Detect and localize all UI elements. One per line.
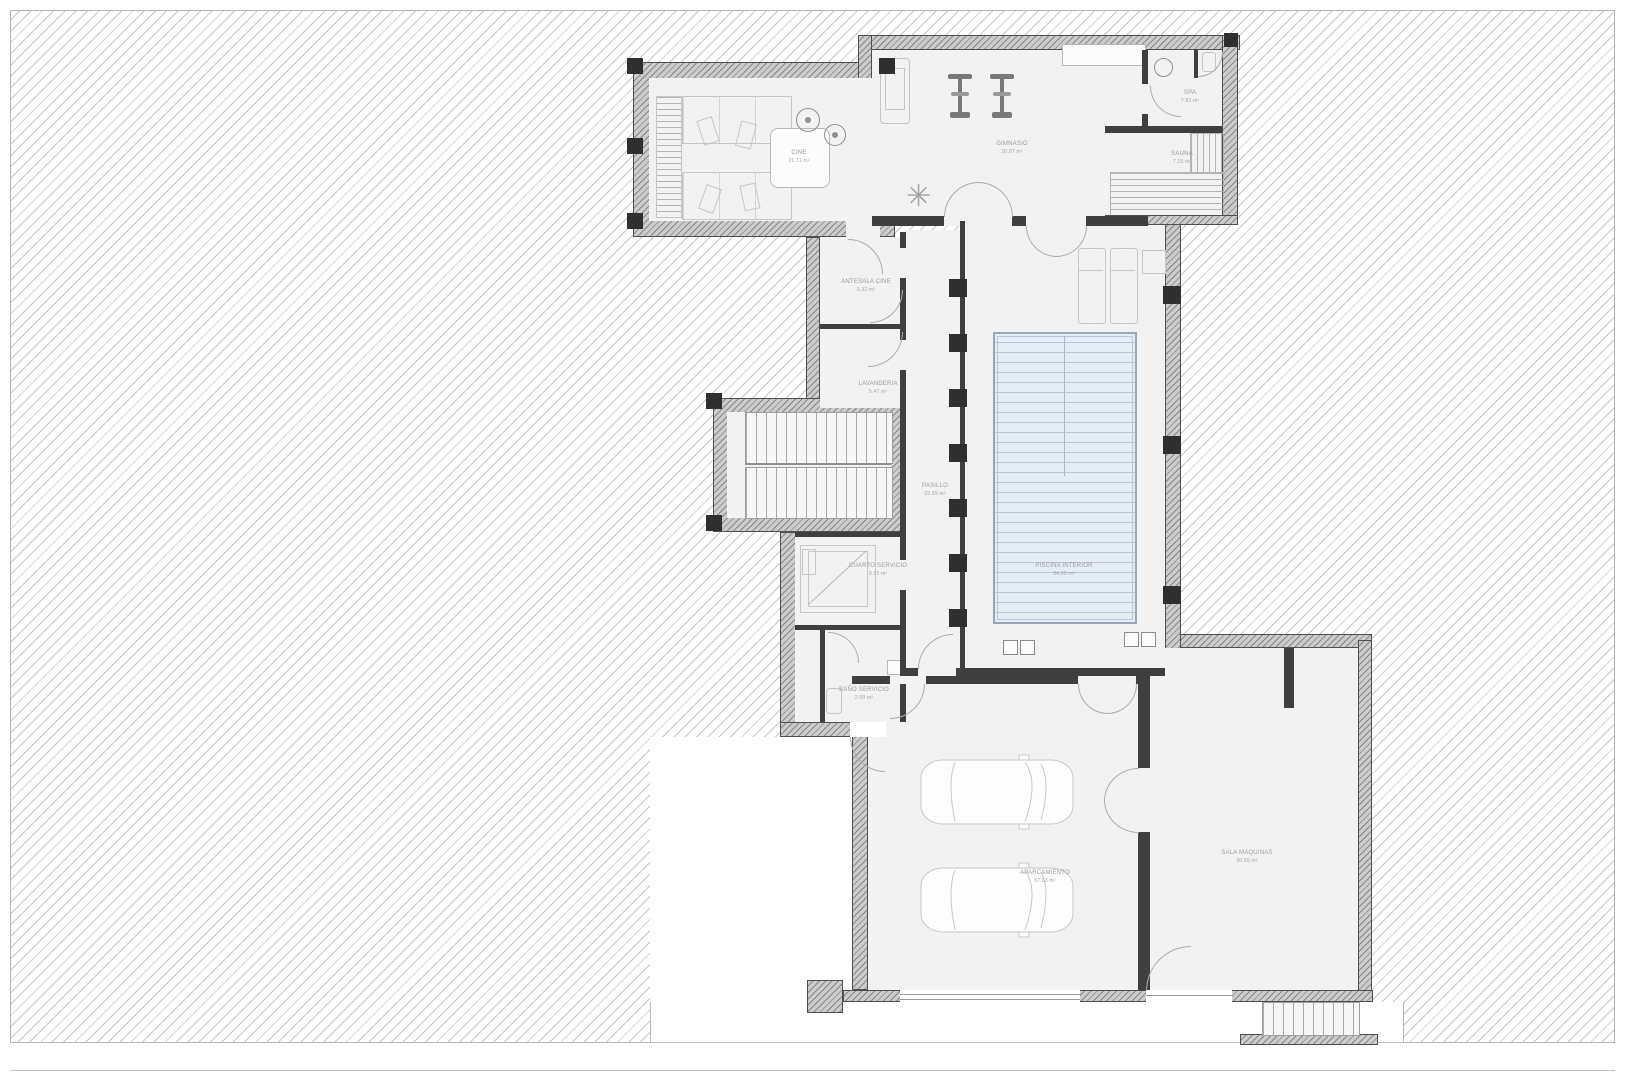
wall-segment xyxy=(820,630,825,722)
room-name: GIMNASIO xyxy=(996,141,1028,147)
door-opening xyxy=(850,722,886,737)
door-opening xyxy=(890,676,926,684)
room-area: 9.15 m² xyxy=(849,571,907,578)
lounger-line xyxy=(1079,270,1103,271)
stair-flight-upper xyxy=(745,412,893,464)
wall-segment xyxy=(858,35,1240,50)
room-name: ANTESALA CINE xyxy=(841,279,891,285)
column xyxy=(627,213,643,229)
room-sala-maquinas-floor xyxy=(1150,648,1358,990)
wall-segment xyxy=(1180,634,1372,648)
room-name: BAÑO SERVICIO xyxy=(839,687,889,693)
door-opening xyxy=(918,668,956,676)
speaker-dot xyxy=(832,132,838,138)
gym-machine xyxy=(958,76,962,116)
sauna-bench xyxy=(1110,172,1224,217)
room-label-cuarto-servicio: CUARTO SERVICIO9.15 m² xyxy=(849,563,907,577)
pool-lounger xyxy=(1110,248,1138,324)
room-label-sauna: SAUNA7.15 m² xyxy=(1171,151,1193,165)
room-name: PASILLO xyxy=(922,483,948,489)
lounger-line xyxy=(1111,270,1135,271)
gym-machine xyxy=(1000,76,1004,116)
side-table xyxy=(1142,250,1166,274)
wall-segment xyxy=(1284,648,1294,708)
wall-segment xyxy=(780,532,796,737)
spa-sink xyxy=(1154,58,1173,77)
floor-fixture xyxy=(1003,640,1018,655)
door-opening xyxy=(900,248,906,278)
room-area: 57.03 m² xyxy=(1020,878,1070,885)
column xyxy=(949,554,967,572)
room-area: 5.47 m² xyxy=(858,389,897,396)
wall-segment xyxy=(795,532,905,537)
door-opening xyxy=(1138,768,1150,832)
door-opening xyxy=(944,216,1012,226)
door-opening xyxy=(1146,990,1232,1002)
door-line xyxy=(1146,995,1232,996)
wall-segment xyxy=(1222,35,1238,220)
wall-segment xyxy=(820,324,905,329)
plant-icon: ✳ xyxy=(906,182,931,212)
room-label-bano: BAÑO SERVICIO2.09 m² xyxy=(839,687,889,701)
floor-plan-sheet: ✳ xyxy=(0,0,1625,1080)
column xyxy=(1163,436,1181,454)
speaker-dot xyxy=(805,117,811,123)
room-name: APARCAMIENTO xyxy=(1020,870,1070,876)
wall-segment xyxy=(806,237,820,410)
column xyxy=(1163,286,1181,304)
room-area: 23.85 m² xyxy=(922,491,948,498)
column xyxy=(879,58,895,74)
column xyxy=(1224,33,1238,47)
room-name: SAUNA xyxy=(1171,151,1193,157)
wall-segment xyxy=(795,625,905,630)
room-name: PISCINA INTERIOR xyxy=(1035,563,1092,569)
room-area: 2.09 m² xyxy=(839,695,889,702)
wall-segment xyxy=(1138,676,1150,990)
room-area: 30.97 m² xyxy=(996,149,1028,156)
room-label-aparcamiento: APARCAMIENTO57.03 m² xyxy=(1020,870,1070,884)
room-area: 7.15 m² xyxy=(1171,159,1193,166)
bed-diagonal xyxy=(808,551,866,605)
door-opening xyxy=(1078,676,1136,684)
sofa-chaise xyxy=(656,96,682,218)
wall-segment xyxy=(1105,126,1222,133)
room-name: CUARTO SERVICIO xyxy=(849,563,907,569)
pool-lane-line xyxy=(1064,336,1065,476)
door-opening xyxy=(1142,84,1148,114)
stair-divider xyxy=(745,463,891,465)
room-label-sala-maquinas: SALA MAQUINAS30.65 m² xyxy=(1221,850,1272,864)
room-label-gimnasio: GIMNASIO30.97 m² xyxy=(996,141,1028,155)
sheet-bottom-line xyxy=(10,1070,1615,1071)
room-name: SPA xyxy=(1184,90,1196,96)
column xyxy=(706,515,722,531)
column xyxy=(706,393,722,409)
gym-cabinet xyxy=(1062,44,1146,66)
column xyxy=(627,58,643,74)
column xyxy=(949,609,967,627)
room-area: 7.83 m² xyxy=(1181,98,1199,105)
pool-lounger xyxy=(1078,248,1106,324)
column xyxy=(949,334,967,352)
wall-segment xyxy=(807,980,843,1013)
sauna-deck xyxy=(1190,133,1224,174)
room-area: 21.71 m² xyxy=(788,158,809,165)
treadmill-belt xyxy=(885,68,905,110)
pool-inner-edge xyxy=(997,336,1133,620)
column xyxy=(1163,586,1181,604)
room-name: SALA MAQUINAS xyxy=(1221,850,1272,856)
column xyxy=(949,444,967,462)
column xyxy=(627,138,643,154)
column xyxy=(949,279,967,297)
room-label-piscina: PISCINA INTERIOR64.95 m² xyxy=(1035,563,1092,577)
exterior-stair xyxy=(1262,1002,1360,1036)
wall-segment xyxy=(1358,640,1372,1002)
room-area: 30.65 m² xyxy=(1221,858,1272,865)
garage-door-line xyxy=(900,999,1080,1000)
room-label-pasillo: PASILLO23.85 m² xyxy=(922,483,948,497)
column xyxy=(949,499,967,517)
room-label-lavanderia: LAVANDERIA5.47 m² xyxy=(858,381,897,395)
gym-machine xyxy=(992,112,1012,118)
room-aparcamiento-floor xyxy=(868,684,1138,990)
garage-door-opening xyxy=(900,990,1080,1002)
room-name: CINE xyxy=(791,150,806,156)
gym-machine xyxy=(993,92,1011,96)
floor-fixture xyxy=(1124,632,1139,647)
floor-fixture xyxy=(1141,632,1156,647)
gym-machine xyxy=(950,112,970,118)
room-label-antesala: ANTESALA CINE6.32 m² xyxy=(841,279,891,293)
car xyxy=(915,750,1079,834)
door-opening xyxy=(1026,216,1086,226)
door-opening xyxy=(900,340,906,370)
stair-flight-lower xyxy=(745,467,893,519)
column xyxy=(949,389,967,407)
floor-fixture xyxy=(1020,640,1035,655)
garage-door-line xyxy=(900,994,1080,995)
gym-machine xyxy=(951,92,969,96)
room-label-spa: SPA7.83 m² xyxy=(1181,90,1199,104)
room-area: 6.32 m² xyxy=(841,287,891,294)
corridor-floor xyxy=(795,630,820,722)
room-label-cine: CINE21.71 m² xyxy=(788,150,809,164)
room-name: LAVANDERIA xyxy=(858,381,897,387)
room-area: 64.95 m² xyxy=(1035,571,1092,578)
